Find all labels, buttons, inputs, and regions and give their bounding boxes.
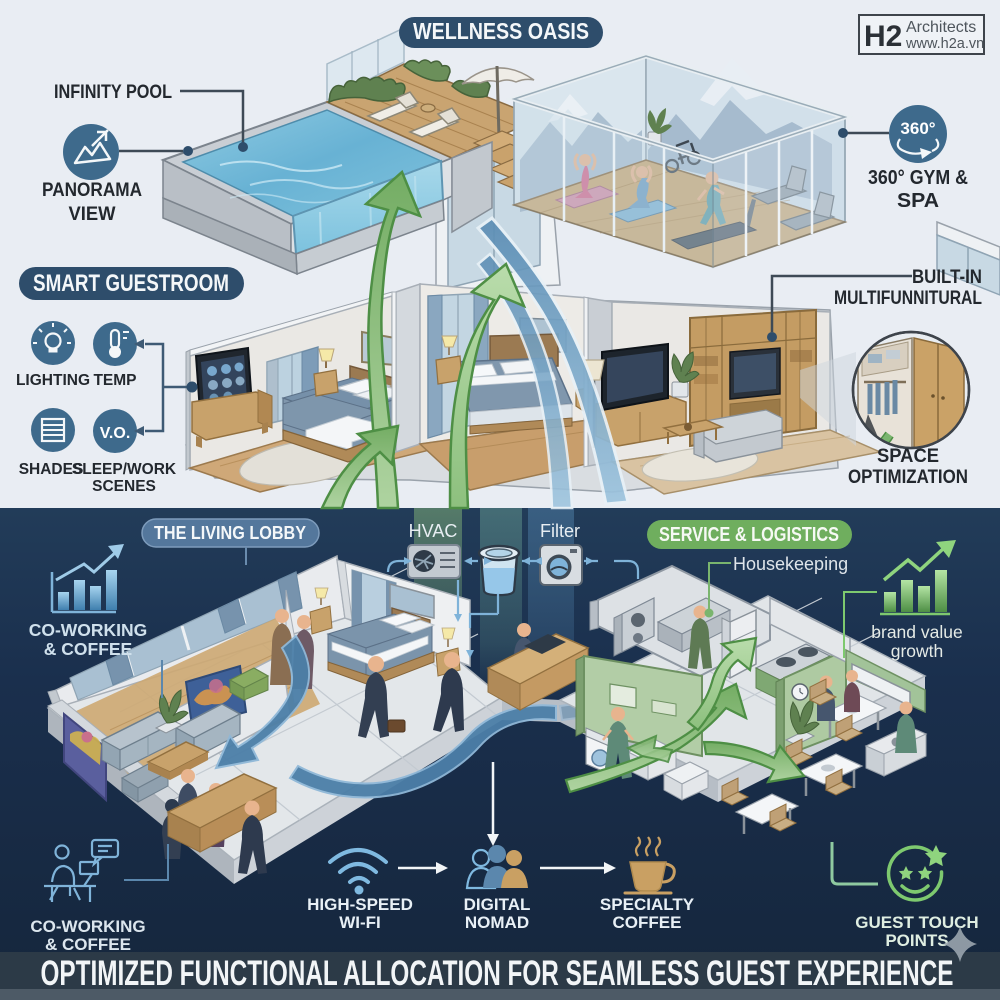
svg-text:WELLNESS OASIS: WELLNESS OASIS	[413, 18, 589, 44]
svg-text:INFINITY POOL: INFINITY POOL	[54, 82, 172, 103]
svg-text:CO-WORKING: CO-WORKING	[30, 917, 145, 936]
svg-text:POINTS: POINTS	[885, 931, 948, 950]
svg-text:V.O.: V.O.	[100, 425, 131, 442]
svg-text:HIGH-SPEED: HIGH-SPEED	[307, 895, 413, 914]
svg-text:SERVICE & LOGISTICS: SERVICE & LOGISTICS	[659, 524, 839, 546]
svg-text:360°: 360°	[900, 119, 935, 138]
svg-text:DIGITAL: DIGITAL	[464, 895, 531, 914]
svg-text:PANORAMA: PANORAMA	[42, 180, 142, 201]
svg-text:LIGHTING: LIGHTING	[16, 372, 90, 389]
svg-text:MULTIFUNNITURAL: MULTIFUNNITURAL	[834, 288, 982, 309]
svg-text:Architects: Architects	[906, 19, 976, 36]
svg-text:VIEW: VIEW	[69, 204, 116, 225]
svg-text:SMART GUESTROOM: SMART GUESTROOM	[33, 270, 229, 297]
svg-text:www.h2a.vn: www.h2a.vn	[905, 36, 984, 52]
svg-text:SPACE: SPACE	[877, 446, 939, 467]
svg-text:COFFEE: COFFEE	[613, 913, 682, 932]
svg-text:H2: H2	[864, 20, 902, 53]
svg-text:brand value: brand value	[871, 622, 962, 642]
svg-text:CO-WORKING: CO-WORKING	[29, 620, 148, 640]
svg-text:OPTIMIZED FUNCTIONAL ALLOCATIO: OPTIMIZED FUNCTIONAL ALLOCATION FOR SEAM…	[41, 954, 954, 993]
svg-text:& COFFEE: & COFFEE	[44, 639, 132, 659]
svg-text:HVAC: HVAC	[409, 521, 458, 541]
svg-text:NOMAD: NOMAD	[465, 913, 529, 932]
svg-text:TEMP: TEMP	[93, 372, 136, 389]
svg-text:Filter: Filter	[540, 521, 580, 541]
svg-text:OPTIMIZATION: OPTIMIZATION	[848, 467, 968, 488]
svg-text:BUILT-IN: BUILT-IN	[912, 267, 982, 288]
svg-text:SPA: SPA	[897, 190, 939, 212]
svg-text:SPECIALTY: SPECIALTY	[600, 895, 695, 914]
svg-text:360° GYM &: 360° GYM &	[868, 167, 968, 189]
svg-text:SLEEP/WORK: SLEEP/WORK	[72, 461, 177, 478]
svg-text:THE LIVING LOBBY: THE LIVING LOBBY	[154, 522, 307, 543]
svg-text:SCENES: SCENES	[92, 478, 156, 495]
svg-text:WI-FI: WI-FI	[339, 913, 381, 932]
svg-text:Housekeeping: Housekeeping	[733, 554, 848, 574]
svg-text:& COFFEE: & COFFEE	[45, 935, 131, 954]
svg-text:growth: growth	[891, 641, 944, 661]
